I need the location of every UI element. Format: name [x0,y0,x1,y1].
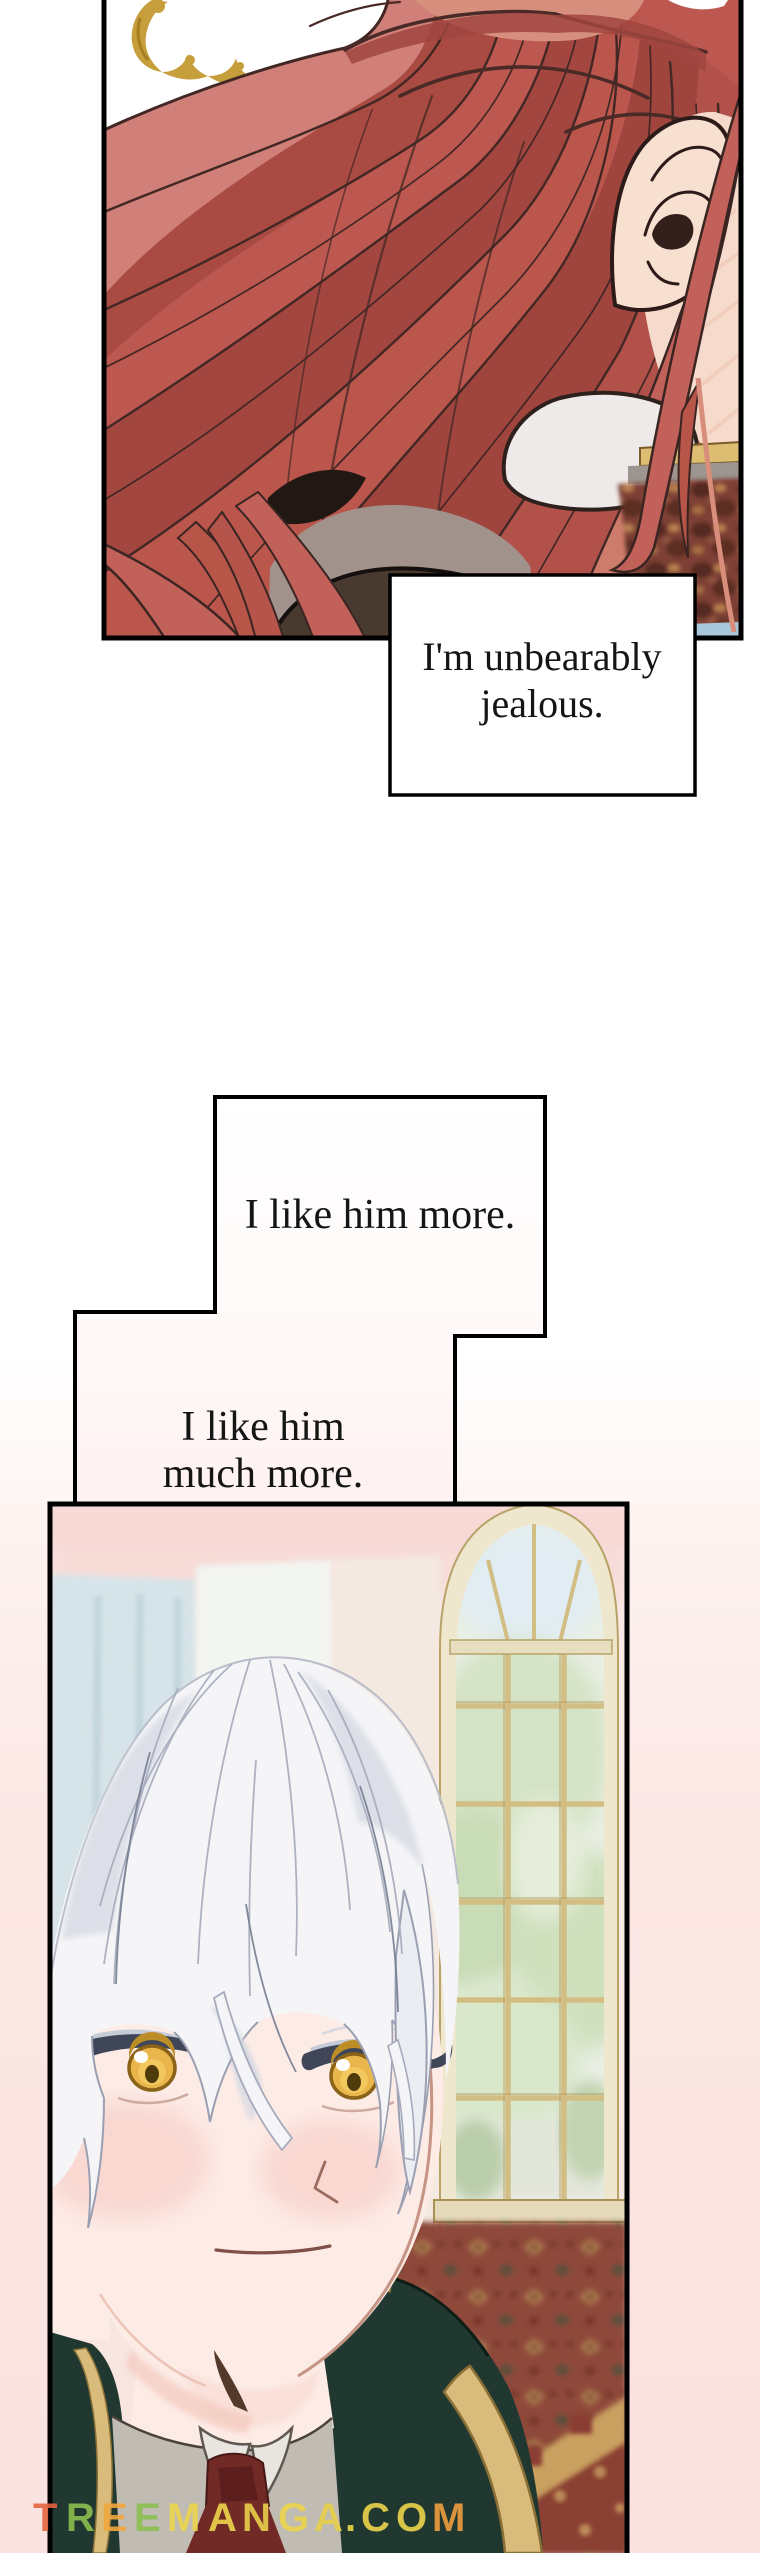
svg-text:C: C [361,2496,395,2540]
svg-text:E: E [134,2496,166,2540]
svg-text:E: E [101,2496,133,2540]
svg-text:much more.: much more. [163,1451,364,1497]
svg-text:M: M [167,2496,206,2540]
svg-text:O: O [396,2496,433,2540]
svg-text:T: T [33,2496,63,2540]
svg-text:N: N [242,2496,276,2540]
svg-text:I'm unbearably: I'm unbearably [422,634,661,679]
svg-text:.: . [345,2496,362,2540]
svg-text:A: A [314,2496,348,2540]
svg-text:jealous.: jealous. [478,681,603,726]
svg-text:G: G [278,2496,315,2540]
svg-text:R: R [66,2496,100,2540]
svg-text:M: M [432,2496,471,2540]
svg-text:I like him more.: I like him more. [245,1192,516,1238]
svg-text:I like him: I like him [181,1404,345,1450]
svg-text:A: A [208,2496,242,2540]
